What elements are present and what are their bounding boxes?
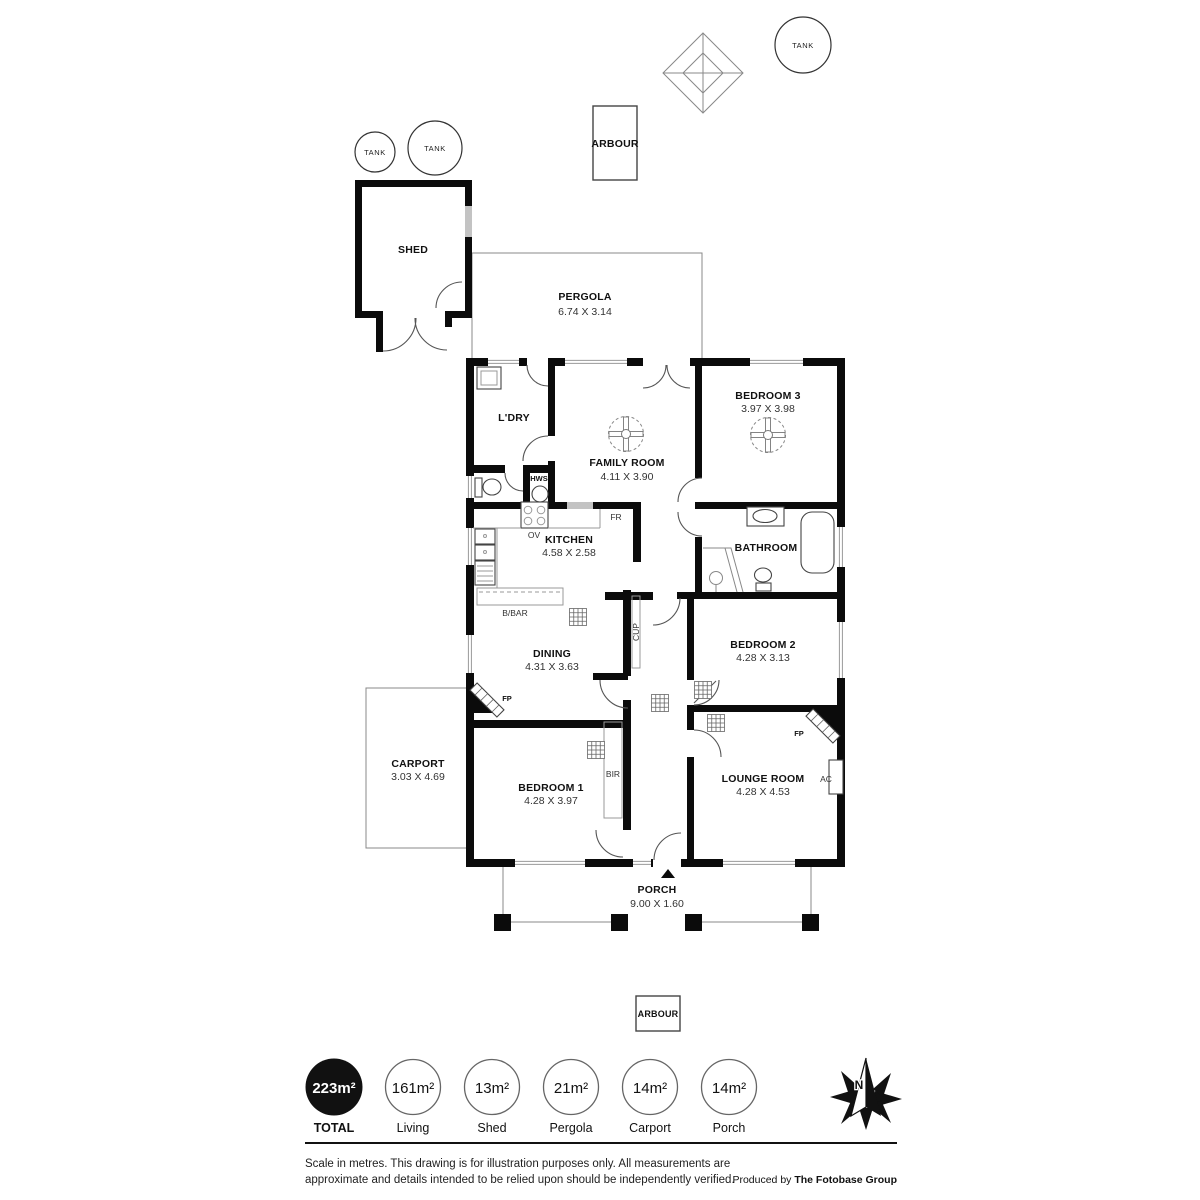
room-label-bed2: BEDROOM 2: [730, 639, 795, 651]
ceiling-fan-icon-bed3: [751, 418, 786, 453]
vent-icon-bed2: [695, 682, 712, 699]
disclaimer-line-2: approximate and details intended to be r…: [305, 1174, 735, 1186]
produced-by: Produced by The Fotobase Group: [732, 1174, 897, 1186]
fireplace-dining-label: FP: [502, 694, 512, 703]
room-label-carport: CARPORT: [391, 758, 445, 770]
floorplan-page: TANK TANK TANK ARBOUR PERGOLA 6.74 X 3.1…: [0, 0, 1200, 1200]
room-labels: L'DRY FAMILY ROOM 4.11 X 3.90 BEDROOM 3 …: [391, 390, 804, 910]
shed: SHED: [355, 180, 472, 352]
arbour-top-label: ARBOUR: [591, 138, 638, 150]
legend-label-living: Living: [397, 1121, 430, 1135]
vent-icon-hall: [652, 695, 669, 712]
pergola-dims: 6.74 X 3.14: [558, 306, 612, 318]
compass-icon: N: [830, 1058, 902, 1130]
bir-label: BIR: [606, 769, 620, 779]
legend-value-shed: 13m²: [475, 1080, 509, 1097]
legend-label-shed: Shed: [477, 1121, 506, 1135]
room-dims-bed3: 3.97 X 3.98: [741, 403, 795, 415]
hws-label: HWS: [530, 474, 548, 483]
servery-slot: [567, 502, 593, 509]
garden-diamond-feature: [663, 33, 743, 113]
area-legend: 223m² TOTAL 161m² Living 13m² Shed 21m² …: [306, 1059, 757, 1136]
legend-label-porch: Porch: [713, 1121, 746, 1135]
vent-icon-dining: [570, 609, 587, 626]
room-label-family: FAMILY ROOM: [589, 457, 664, 469]
fireplace-lounge-label: FP: [794, 729, 804, 738]
legend-value-total: 223m²: [312, 1080, 355, 1097]
legend-value-porch: 14m²: [712, 1080, 746, 1097]
room-dims-porch: 9.00 X 1.60: [630, 898, 684, 910]
compass-north-label: N: [855, 1078, 864, 1092]
vent-icon-lounge: [708, 715, 725, 732]
room-dims-lounge: 4.28 X 4.53: [736, 786, 790, 798]
room-dims-bed2: 4.28 X 3.13: [736, 652, 790, 664]
legend-label-carport: Carport: [629, 1121, 671, 1135]
shed-door-slot: [465, 206, 472, 237]
room-dims-bed1: 4.28 X 3.97: [524, 795, 578, 807]
pergola-label: PERGOLA: [558, 291, 612, 303]
oven-label: OV: [528, 530, 541, 540]
fireplaces: FP FP: [470, 683, 840, 743]
legend-value-carport: 14m²: [633, 1080, 667, 1097]
room-dims-dining: 4.31 X 3.63: [525, 661, 579, 673]
footer: Scale in metres. This drawing is for ill…: [305, 1143, 897, 1186]
room-dims-kitchen: 4.58 X 2.58: [542, 547, 596, 559]
room-label-ldry: L'DRY: [498, 412, 530, 424]
produced-by-prefix: Produced by: [732, 1174, 794, 1186]
breakfast-bar-label: B/BAR: [502, 608, 528, 618]
vent-icon-bed1: [588, 742, 605, 759]
tank-label-1: TANK: [792, 41, 814, 50]
legend-value-pergola: 21m²: [554, 1080, 588, 1097]
legend-value-living: 161m²: [392, 1080, 435, 1097]
room-label-lounge: LOUNGE ROOM: [722, 773, 805, 785]
room-dims-carport: 3.03 X 4.69: [391, 771, 445, 783]
tank-label-2: TANK: [364, 148, 386, 157]
room-label-dining: DINING: [533, 648, 571, 660]
floorplan-drawing: TANK TANK TANK ARBOUR PERGOLA 6.74 X 3.1…: [0, 0, 1200, 1200]
disclaimer-line-1: Scale in metres. This drawing is for ill…: [305, 1158, 730, 1170]
shed-label: SHED: [398, 244, 428, 256]
arbour-bottom: ARBOUR: [636, 996, 680, 1031]
room-dims-family: 4.11 X 3.90: [601, 471, 654, 483]
ceiling-fan-icon-family: [609, 417, 644, 452]
tank-label-3: TANK: [424, 144, 446, 153]
arbour-bottom-label: ARBOUR: [638, 1009, 679, 1019]
fridge-label: FR: [610, 512, 621, 522]
room-label-porch: PORCH: [638, 884, 677, 896]
room-label-bed1: BEDROOM 1: [518, 782, 583, 794]
room-label-kitchen: KITCHEN: [545, 534, 593, 546]
room-label-bathroom: BATHROOM: [735, 542, 798, 554]
legend-label-pergola: Pergola: [549, 1121, 592, 1135]
room-label-bed3: BEDROOM 3: [735, 390, 800, 402]
legend-label-total: TOTAL: [314, 1121, 355, 1135]
ac-label: AC: [820, 774, 832, 784]
produced-by-brand: The Fotobase Group: [794, 1174, 897, 1186]
cupboard-label: CUP: [631, 623, 641, 641]
entry-arrow-icon: [661, 869, 675, 878]
